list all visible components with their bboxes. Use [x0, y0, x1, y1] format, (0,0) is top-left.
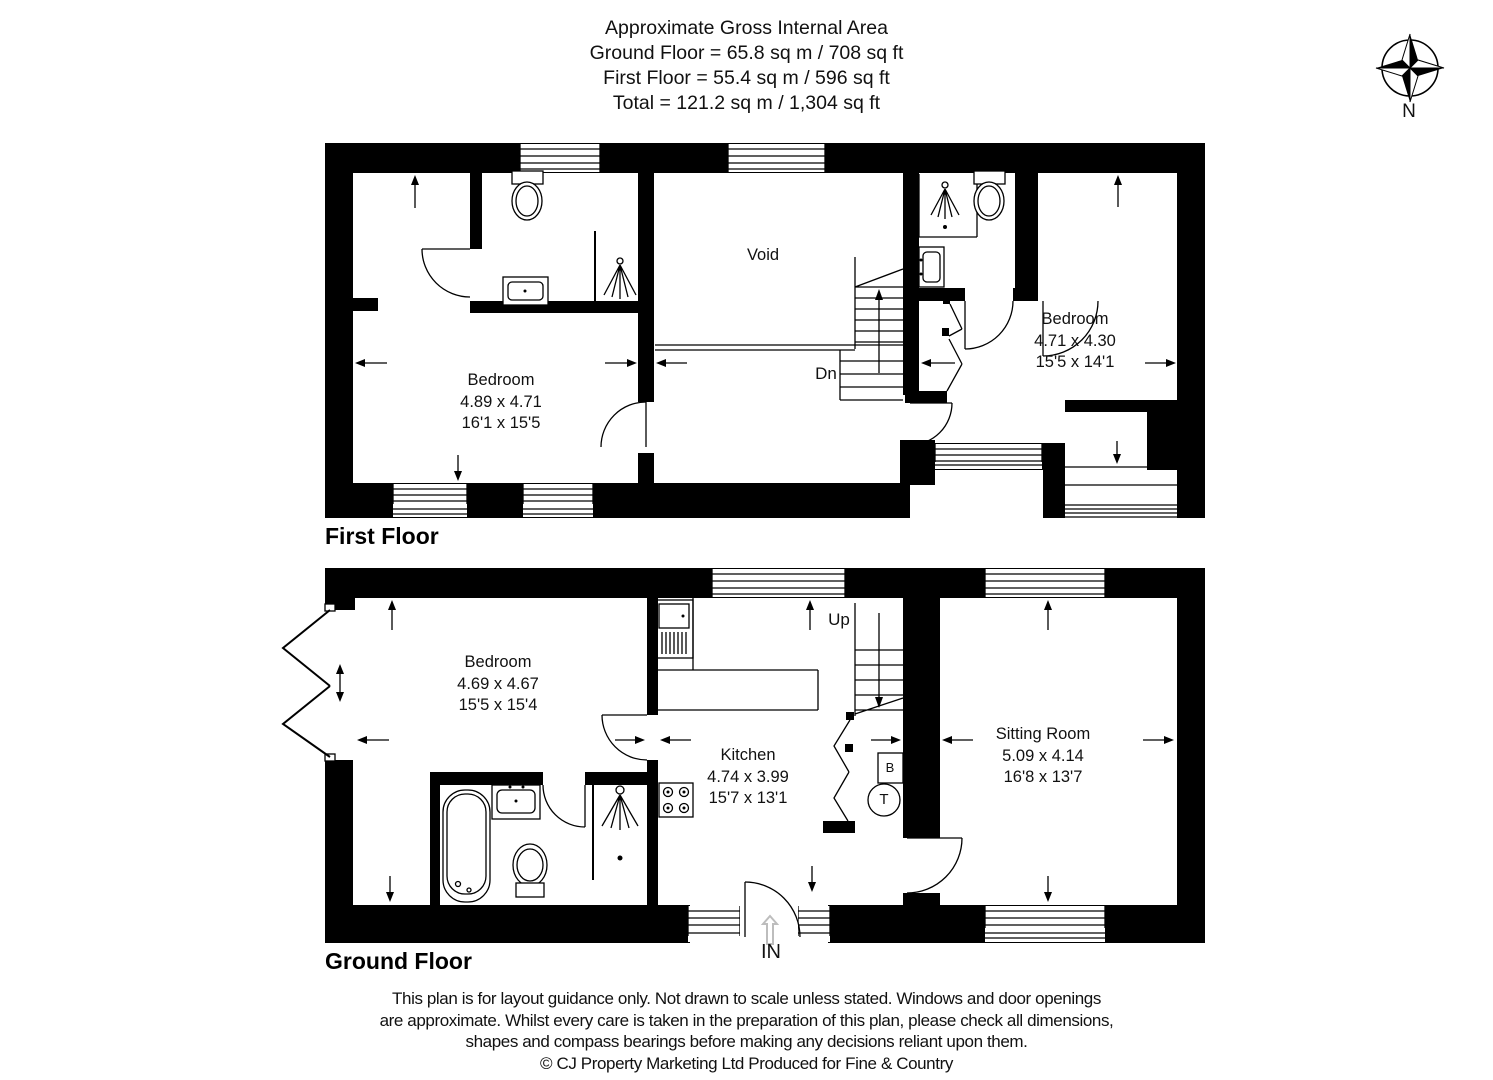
room-label-kitchen: Kitchen 4.74 x 3.99 15'7 x 13'1 — [707, 745, 789, 810]
kitchen-sink-icon — [655, 600, 693, 658]
sink-icon — [503, 277, 548, 308]
room-name: Sitting Room — [996, 724, 1090, 746]
tank-label: T — [879, 791, 888, 808]
room-size-m: 4.89 x 4.71 — [460, 392, 542, 414]
room-label-ff-bedroom-left: Bedroom 4.89 x 4.71 16'1 x 15'5 — [460, 370, 542, 435]
hob-icon — [659, 783, 693, 817]
door — [910, 403, 952, 445]
bathroom-fixtures — [443, 785, 638, 902]
arrow-down — [454, 455, 462, 481]
closet-bifold-door — [947, 304, 962, 391]
arrow-up — [388, 600, 396, 630]
arrow-right — [1145, 359, 1176, 367]
shower-icon — [595, 231, 636, 306]
room-size-m: 5.09 x 4.14 — [996, 746, 1090, 768]
shower-room-fixtures — [919, 171, 1005, 287]
window — [387, 484, 473, 517]
disclaimer-line-1: This plan is for layout guidance only. N… — [0, 988, 1493, 1010]
arrow-down — [1044, 876, 1052, 902]
disclaimer: This plan is for layout guidance only. N… — [0, 988, 1493, 1074]
entrance-label: IN — [761, 941, 781, 964]
compass-north-label: N — [1402, 101, 1416, 123]
arrow-left — [656, 359, 687, 367]
arrow-up — [411, 175, 419, 208]
disclaimer-line-2: are approximate. Whilst every care is ta… — [0, 1010, 1493, 1032]
room-size-ft: 15'7 x 13'1 — [707, 788, 789, 810]
header-title: Approximate Gross Internal Area — [0, 16, 1493, 41]
arrow-vertical-double — [336, 664, 344, 702]
shower-icon — [593, 785, 638, 880]
stairs-up — [834, 603, 903, 821]
arrow-left — [942, 736, 973, 744]
stairs-up-label: Up — [828, 610, 850, 630]
understairs-bifold-door — [834, 720, 850, 821]
shower-icon — [919, 174, 977, 237]
room-size-m: 4.69 x 4.67 — [457, 674, 539, 696]
ground-floor-windows — [283, 569, 1111, 943]
arrow-right — [615, 736, 645, 744]
arrow-right — [605, 359, 637, 367]
arrow-right — [1143, 736, 1174, 744]
first-floor-title: First Floor — [325, 523, 439, 550]
boiler-label: B — [886, 760, 895, 775]
arrow-down — [386, 876, 394, 902]
arrow-up — [806, 600, 814, 630]
arrow-left — [357, 736, 389, 744]
room-name: Bedroom — [1034, 309, 1116, 331]
sink-icon — [919, 247, 944, 287]
window-recess — [1065, 467, 1177, 517]
sink-icon — [492, 785, 540, 819]
room-name: Bedroom — [460, 370, 542, 392]
arrow-left — [921, 359, 955, 367]
door — [965, 301, 1013, 349]
room-size-ft: 15'5 x 15'4 — [457, 695, 539, 717]
arrow-left — [355, 359, 387, 367]
arrow-left — [660, 736, 691, 744]
room-size-ft: 16'1 x 15'5 — [460, 413, 542, 435]
toilet-icon — [974, 171, 1005, 220]
bathtub-icon — [443, 790, 490, 902]
room-name: Void — [747, 245, 779, 267]
room-size-m: 4.74 x 3.99 — [707, 767, 789, 789]
door — [602, 715, 647, 760]
arrow-up — [1044, 600, 1052, 630]
room-size-m: 4.71 x 4.30 — [1034, 331, 1116, 353]
bathroom-fixtures-left — [503, 171, 636, 308]
window — [688, 906, 740, 942]
arrow-up — [1114, 175, 1122, 207]
room-name: Bedroom — [457, 652, 539, 674]
room-label-gf-bedroom: Bedroom 4.69 x 4.67 15'5 x 15'4 — [457, 652, 539, 717]
room-size-ft: 16'8 x 13'7 — [996, 767, 1090, 789]
door — [422, 249, 470, 297]
room-name: Kitchen — [707, 745, 789, 767]
arrow-down — [808, 866, 816, 892]
toilet-icon — [512, 171, 543, 220]
toilet-icon — [513, 844, 547, 897]
folding-door — [283, 604, 335, 761]
compass-rose-icon — [1375, 33, 1445, 103]
disclaimer-line-3: shapes and compass bearings before makin… — [0, 1031, 1493, 1053]
ground-floor-title: Ground Floor — [325, 948, 472, 975]
window — [728, 144, 825, 172]
arrow-down — [1113, 441, 1121, 464]
window — [517, 484, 599, 517]
arrow-right — [871, 736, 901, 744]
window — [929, 444, 1048, 469]
header-ground-floor-area: Ground Floor = 65.8 sq m / 708 sq ft — [0, 41, 1493, 66]
door — [601, 402, 646, 447]
room-label-void: Void — [747, 245, 779, 267]
window — [985, 569, 1105, 597]
window — [712, 569, 845, 597]
room-size-ft: 15'5 x 14'1 — [1034, 352, 1116, 374]
floorplan-page: Approximate Gross Internal Area Ground F… — [0, 0, 1493, 1080]
copyright-line: © CJ Property Marketing Ltd Produced for… — [0, 1053, 1493, 1075]
header-total-area: Total = 121.2 sq m / 1,304 sq ft — [0, 91, 1493, 116]
door — [907, 838, 962, 893]
stairs-down-label: Dn — [815, 364, 837, 384]
door — [543, 785, 585, 827]
stairs-down — [655, 257, 903, 400]
window — [520, 144, 600, 172]
room-label-sitting-room: Sitting Room 5.09 x 4.14 16'8 x 13'7 — [996, 724, 1090, 789]
header-first-floor-area: First Floor = 55.4 sq m / 596 sq ft — [0, 66, 1493, 91]
window — [798, 906, 830, 942]
room-label-ff-bedroom-right: Bedroom 4.71 x 4.30 15'5 x 14'1 — [1034, 309, 1116, 374]
gross-internal-area-header: Approximate Gross Internal Area Ground F… — [0, 16, 1493, 116]
entrance-door-gap — [740, 906, 798, 943]
window — [979, 906, 1111, 942]
